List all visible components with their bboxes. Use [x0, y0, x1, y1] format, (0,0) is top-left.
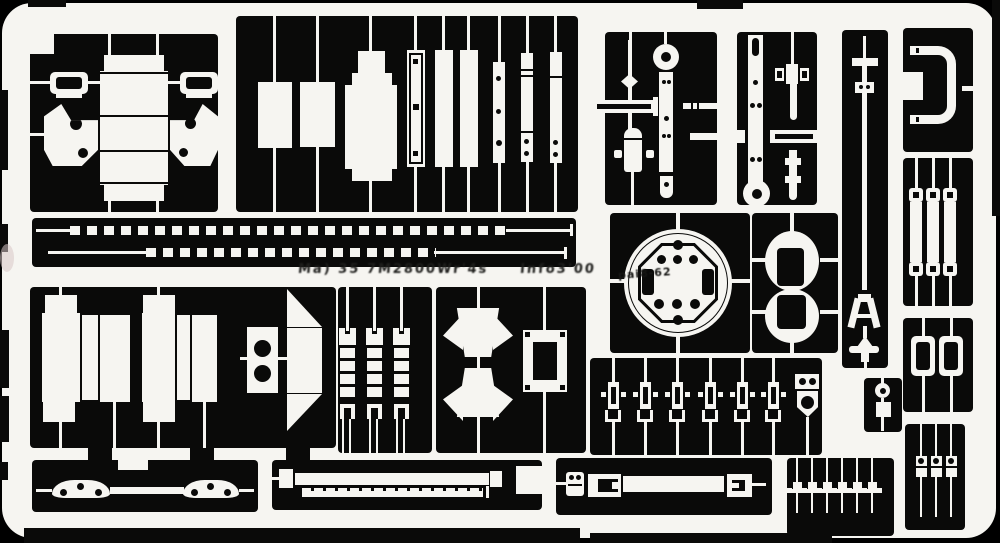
cleaning-rod-part — [862, 66, 867, 290]
handle-arm — [910, 115, 932, 124]
tool-clamp-part — [705, 382, 716, 409]
cutout — [913, 192, 919, 198]
tab — [316, 16, 319, 82]
edge-tab — [0, 396, 9, 442]
clamp-bar — [856, 314, 873, 318]
tab — [278, 357, 287, 360]
tab — [676, 335, 680, 353]
hole — [664, 116, 669, 121]
tab — [950, 376, 953, 412]
strap-segment — [367, 361, 382, 371]
tab — [36, 489, 52, 492]
corner-mark — [560, 385, 565, 390]
sprue-mark — [698, 392, 703, 397]
tab — [612, 358, 615, 382]
sprue-mark — [621, 392, 626, 397]
etch-slot — [597, 104, 651, 109]
tab — [373, 287, 376, 331]
sprue-mark — [718, 392, 723, 397]
hole — [496, 140, 502, 146]
tab — [48, 251, 146, 254]
sprue-mark — [750, 392, 755, 397]
hole — [654, 299, 664, 309]
tab — [400, 287, 403, 331]
hole — [413, 104, 419, 110]
hole — [662, 80, 666, 84]
strap-buckle — [943, 188, 957, 202]
hole — [799, 378, 806, 385]
hole — [254, 340, 271, 357]
hinge-strip-part — [407, 50, 425, 167]
tab — [709, 422, 712, 455]
pin-shaft — [856, 493, 858, 513]
fold-line — [100, 150, 168, 152]
flap-cut — [100, 55, 104, 71]
etch-mark — [916, 117, 919, 122]
cutout — [598, 479, 618, 492]
tab — [168, 81, 180, 84]
etch-line — [568, 484, 582, 486]
pin-band — [916, 468, 927, 477]
etched-text-info: Info3'00 — [519, 262, 596, 277]
fold-line — [100, 182, 168, 184]
hole — [801, 396, 814, 409]
tab — [203, 402, 206, 448]
strap-buckle — [339, 334, 356, 345]
tab — [962, 86, 973, 91]
strap-segment — [340, 361, 355, 371]
tab — [30, 81, 50, 84]
tab — [570, 224, 573, 236]
stowage-box-part — [100, 55, 168, 201]
tab — [88, 81, 100, 84]
pin-head — [946, 456, 957, 466]
panel-tooth — [190, 448, 214, 460]
edge-tab — [0, 90, 8, 170]
tab — [59, 422, 62, 448]
pin-shaft — [811, 493, 813, 513]
tab — [498, 16, 501, 62]
dashed-trim-strip — [146, 248, 436, 257]
strap-end — [351, 408, 355, 419]
cutout — [947, 192, 953, 198]
rod-t-handle — [852, 58, 878, 66]
hole — [179, 148, 188, 157]
box-side-part — [177, 315, 190, 400]
flap-cut — [164, 55, 168, 71]
hole — [77, 483, 84, 490]
tab — [526, 162, 529, 212]
strap-buckle — [366, 334, 383, 345]
tab — [477, 287, 480, 308]
hole — [757, 103, 762, 108]
tab — [477, 357, 480, 368]
sprue-mark — [665, 392, 670, 397]
box-flap — [143, 295, 175, 313]
cutout — [56, 77, 82, 89]
strap-segment — [394, 348, 409, 358]
tab — [922, 318, 925, 336]
strip-end-part — [660, 176, 673, 198]
strap-end — [378, 408, 382, 419]
pin-shaft — [950, 477, 952, 517]
tab — [752, 483, 766, 486]
handle-rod-part — [790, 84, 797, 120]
ring-part — [743, 180, 770, 207]
fender-mount-part — [52, 480, 110, 498]
strap-strip-part — [521, 53, 533, 162]
pin-band — [931, 468, 942, 477]
edge-tab — [0, 330, 9, 388]
strap-segment — [340, 387, 355, 397]
tab — [543, 392, 546, 453]
box-side-part — [42, 313, 80, 402]
scan-artifact — [0, 244, 14, 272]
tab — [841, 458, 843, 482]
strip-part — [460, 50, 478, 167]
tab — [486, 486, 489, 498]
tab — [554, 16, 557, 52]
pin-collar — [838, 482, 847, 489]
cutout — [777, 295, 806, 329]
sprue-mark — [761, 392, 766, 397]
fender-mount-part — [183, 480, 239, 498]
slot — [771, 387, 776, 404]
tab — [644, 358, 647, 382]
clamp-jaw — [775, 68, 784, 81]
tab — [915, 158, 918, 188]
hook-head — [795, 374, 819, 389]
hole — [78, 148, 88, 158]
tab — [273, 148, 276, 212]
corner-mark — [525, 332, 530, 337]
loop-frame-part — [939, 336, 963, 376]
tab — [709, 358, 712, 382]
tab — [156, 34, 159, 56]
tab — [316, 147, 319, 212]
sprue-mark — [601, 392, 606, 397]
tab — [752, 310, 767, 314]
clamp-gap — [732, 483, 739, 488]
tool-clamp-part — [640, 382, 651, 409]
etch-line — [550, 76, 562, 78]
etched-text-main: Ma) 35 7M2800Wr'4s — [297, 262, 489, 277]
hole — [413, 151, 418, 156]
strap-segment — [367, 387, 382, 397]
hole — [254, 365, 271, 382]
ring-part — [653, 44, 679, 70]
hole — [753, 80, 758, 85]
box-side-part — [82, 315, 98, 400]
pin-shaft — [920, 477, 922, 517]
cutout — [947, 266, 953, 272]
edge-tab — [697, 0, 743, 9]
cutout — [944, 342, 958, 370]
hole — [667, 134, 671, 138]
hole — [752, 189, 762, 199]
strap-segment — [367, 348, 382, 358]
cutout — [802, 71, 807, 78]
pin-head — [931, 456, 942, 466]
slot — [675, 387, 680, 404]
box-side-part — [142, 313, 175, 402]
tab — [664, 32, 667, 44]
strap-body — [927, 202, 939, 262]
tooth-marks — [302, 488, 483, 491]
clamp-jaw — [800, 68, 809, 81]
strip-part — [493, 62, 505, 163]
tool-clamp-part — [672, 382, 683, 409]
dart-body — [861, 344, 869, 362]
strap-buckle — [943, 262, 957, 276]
pin-collar — [823, 482, 832, 489]
hole — [809, 378, 816, 385]
tab — [612, 422, 615, 455]
hatch-frame-part — [523, 330, 567, 392]
tab — [113, 402, 116, 448]
photoetch-fret-scan: Ma) 35 7M2800Wr'4s Info3'00 pai8-62 — [0, 0, 1000, 543]
pin-collar — [868, 482, 877, 489]
tab — [820, 258, 838, 262]
hole — [750, 157, 755, 162]
rod-collar — [736, 130, 745, 143]
pin-shaft — [935, 477, 937, 517]
tool-clamp-part — [608, 382, 619, 409]
corner-mark — [560, 332, 565, 337]
long-bar-part — [295, 473, 489, 485]
tab — [376, 419, 378, 453]
box-flange — [352, 169, 392, 181]
sprue-mark — [730, 392, 735, 397]
tab — [272, 477, 279, 480]
handle-arm — [910, 46, 932, 55]
tab — [864, 362, 867, 368]
slot — [708, 387, 713, 404]
strap-end — [367, 408, 371, 419]
tow-bar-part — [592, 100, 656, 113]
hole — [880, 388, 886, 394]
plate-part — [258, 82, 292, 148]
toothed-strip-part — [302, 488, 483, 497]
tab — [644, 422, 647, 455]
rod-collar — [855, 82, 874, 93]
bar-end — [279, 469, 293, 488]
tab — [554, 163, 557, 212]
tab — [240, 357, 247, 360]
holed-plate-part — [247, 327, 278, 393]
tab — [369, 181, 372, 212]
tab — [467, 167, 470, 212]
hole — [690, 299, 700, 309]
pin-shaft — [841, 493, 843, 513]
box-body-part — [345, 85, 397, 169]
box-flap — [43, 402, 75, 422]
pin-band — [946, 468, 957, 477]
tab — [950, 424, 952, 456]
strap-buckle — [926, 188, 940, 202]
box-side-part — [100, 315, 130, 402]
flap-cut — [164, 185, 168, 201]
tab — [342, 419, 344, 453]
slot — [702, 269, 714, 295]
cutout — [732, 480, 745, 491]
bracket-strip-part — [659, 72, 673, 172]
tool-shaft-part — [623, 476, 724, 492]
plate-part — [358, 51, 385, 73]
strap-body — [910, 202, 922, 262]
bar-end — [490, 471, 502, 487]
sprue-mark — [781, 392, 786, 397]
hole — [576, 475, 581, 480]
sprue-mark — [614, 150, 622, 158]
sprue-mark — [646, 150, 654, 158]
hole — [207, 483, 214, 490]
hole — [866, 85, 870, 89]
panel-tooth — [286, 448, 310, 460]
hole — [661, 52, 671, 62]
tab — [556, 482, 566, 485]
hole — [933, 458, 939, 464]
tab — [157, 422, 160, 448]
bottom-scan-band — [24, 528, 580, 543]
tab — [442, 16, 445, 50]
clamp-body — [786, 64, 798, 84]
etch-line — [624, 138, 642, 140]
etch-line — [521, 75, 533, 77]
tab — [949, 158, 952, 188]
cutout — [913, 266, 919, 272]
hole — [918, 458, 924, 464]
slot — [611, 387, 616, 404]
tab — [403, 419, 405, 453]
plate-part — [300, 82, 335, 147]
tab — [108, 201, 111, 212]
box-side-part — [192, 315, 217, 402]
strap-buckle — [393, 334, 410, 345]
hole — [496, 109, 501, 114]
slot — [752, 38, 759, 56]
loop-frame-part — [911, 336, 935, 376]
hole — [60, 489, 67, 496]
bar-end — [653, 97, 658, 116]
hole — [667, 80, 671, 84]
tab — [414, 167, 417, 212]
edge-tab — [28, 0, 66, 7]
tool-head — [566, 472, 584, 496]
thin-rod-part — [683, 103, 735, 109]
dashed-trim-strip — [70, 226, 510, 235]
strap-segment — [340, 374, 355, 384]
sprue-mark — [685, 392, 690, 397]
tab — [30, 133, 44, 136]
tab — [498, 163, 501, 212]
tab — [881, 417, 884, 431]
tab — [796, 458, 798, 482]
collar-line — [697, 103, 699, 109]
tab — [467, 16, 470, 50]
box-flap — [143, 402, 175, 422]
hole — [191, 489, 198, 496]
clamp-gap — [612, 482, 618, 489]
connector-bar — [110, 487, 184, 494]
etch-slot — [775, 134, 813, 139]
hole — [673, 315, 683, 325]
tab — [564, 247, 567, 259]
square-part — [876, 402, 891, 417]
tab — [920, 424, 922, 456]
tab — [414, 16, 417, 50]
grab-handle-part — [928, 46, 956, 124]
tab — [871, 458, 873, 482]
tab — [772, 358, 775, 382]
strip-part — [435, 50, 453, 167]
etch-line — [521, 69, 533, 71]
deflector-body — [287, 328, 322, 393]
pin-shaft — [796, 493, 798, 513]
hole — [673, 240, 683, 250]
cylinder-part — [624, 128, 642, 172]
strap-buckle — [926, 262, 940, 276]
cutout — [186, 77, 212, 89]
strap-end — [340, 408, 344, 419]
frame-notch — [30, 34, 54, 54]
tab — [932, 158, 935, 188]
tab — [741, 358, 744, 382]
slot — [740, 387, 745, 404]
strap-end — [405, 408, 409, 419]
hole — [569, 475, 574, 480]
frame-notch — [516, 466, 542, 494]
hole — [413, 59, 418, 64]
frame-notch — [903, 72, 923, 100]
collar-line — [691, 103, 693, 109]
strap-end — [394, 408, 398, 419]
tab — [526, 16, 529, 53]
hole — [496, 76, 501, 81]
edge-strip — [992, 0, 1000, 216]
tab — [346, 287, 349, 331]
tool-clamp-part — [768, 382, 779, 409]
pin-shaft — [871, 493, 873, 513]
tab — [396, 419, 398, 453]
tab — [863, 36, 866, 60]
tab — [922, 376, 925, 412]
pin-head — [916, 456, 927, 466]
clamp-block — [588, 474, 621, 497]
tab — [730, 279, 750, 283]
hole — [553, 152, 558, 157]
cutout — [916, 342, 930, 370]
pin-shaft — [826, 493, 828, 513]
hole — [224, 489, 231, 496]
turret-ring-disc-part — [624, 229, 732, 337]
tab — [36, 229, 72, 232]
fold-line — [100, 72, 168, 74]
strap-segment — [394, 374, 409, 384]
tab — [741, 422, 744, 455]
hole — [689, 255, 698, 264]
etch-line — [521, 131, 533, 133]
flap-cut — [100, 185, 104, 201]
box-flap — [45, 295, 77, 313]
strap-strip-part — [550, 52, 562, 163]
tab — [157, 287, 160, 295]
clamp-block — [727, 474, 752, 497]
tab — [369, 16, 372, 51]
tab — [676, 358, 679, 382]
cutout — [930, 266, 936, 272]
box-flange — [352, 73, 392, 85]
